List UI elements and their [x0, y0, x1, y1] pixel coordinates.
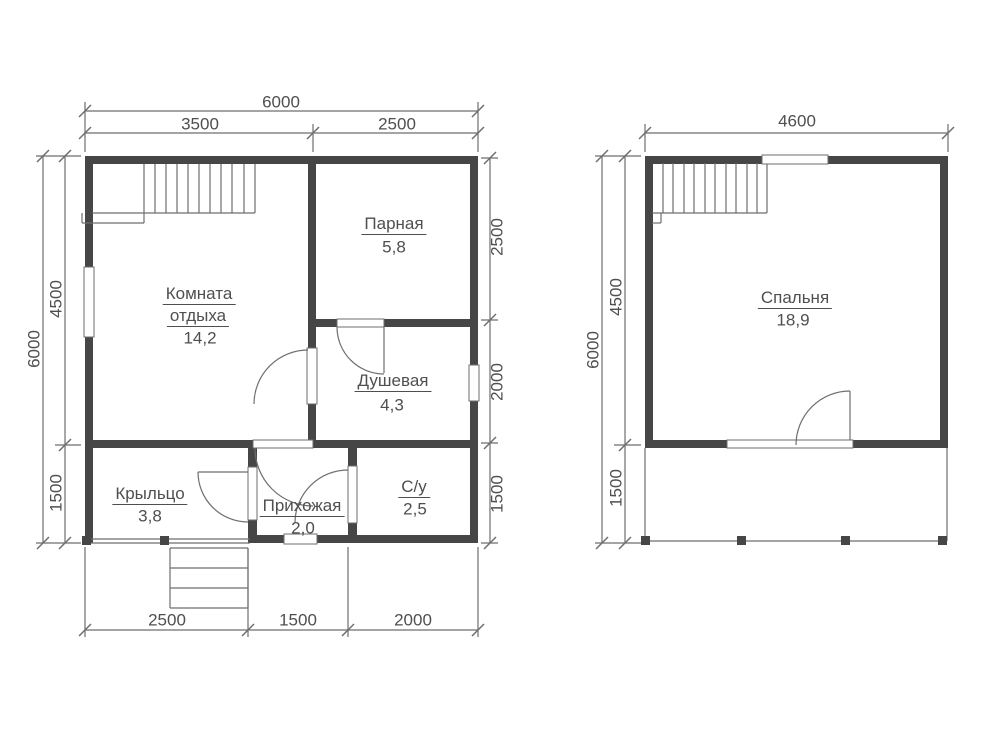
door-arc-bedroom	[796, 391, 850, 445]
dim-top-total: 6000	[262, 94, 300, 111]
room-area-wc: 2,5	[403, 501, 427, 518]
dim2-top-total: 4600	[778, 113, 816, 130]
door-opening-wc	[348, 466, 357, 523]
room-name-wc: С/у	[398, 478, 430, 498]
room-area-sauna: 5,8	[382, 239, 406, 256]
door-arc-lounge-shower	[254, 350, 308, 404]
porch-post	[160, 536, 169, 545]
door-opening-porch	[248, 467, 257, 520]
door-opening-sauna	[337, 319, 384, 327]
dim-left-lower: 1500	[48, 474, 65, 512]
door-arc-sauna	[337, 327, 384, 374]
floorplan-image: Комнатаотдыха14,2Парная5,8Душевая4,3Крыл…	[0, 0, 1000, 750]
dim2-left-lower: 1500	[608, 469, 625, 507]
terrace-post	[641, 536, 650, 545]
dim-top-right: 2500	[378, 116, 416, 133]
dim-left-total: 6000	[26, 330, 43, 368]
room-name-hall: Прихожая	[260, 497, 345, 517]
plan1-right-wall	[470, 156, 478, 543]
plan1-sauna-shower-wall	[308, 319, 478, 327]
dim-right-lower: 1500	[489, 475, 506, 513]
dim-right-middle: 2000	[489, 363, 506, 401]
room-area-lounge: 14,2	[183, 330, 216, 347]
plan1-top-wall	[85, 156, 478, 164]
dim-bottom-left: 2500	[148, 612, 186, 629]
dim2-left-total: 6000	[585, 331, 602, 369]
dim2-left-upper: 4500	[608, 278, 625, 316]
room-name-lounge-line2: отдыха	[167, 307, 229, 327]
dim-bottom-right: 2000	[394, 612, 432, 629]
door-opening-bedroom	[727, 440, 853, 448]
room-name-bedroom: Спальня	[758, 289, 832, 309]
door-arc-porch	[198, 472, 248, 522]
room-area-hall: 2,0	[291, 520, 315, 537]
terrace-post	[938, 536, 947, 545]
room-name-lounge-line1: Комната	[163, 285, 236, 305]
door-opening-lounge-hall	[253, 440, 313, 448]
room-name-porch: Крыльцо	[112, 485, 187, 505]
dim-left-upper: 4500	[48, 280, 65, 318]
door-opening-lounge-shower	[307, 348, 317, 404]
dim-right-upper: 2500	[489, 218, 506, 256]
plan1-left-wall	[85, 156, 93, 543]
porch-post	[82, 536, 91, 545]
window-left	[84, 267, 94, 337]
plan2-right-wall	[940, 156, 948, 448]
room-area-shower: 4,3	[380, 397, 404, 414]
plan2-left-wall	[645, 156, 653, 448]
window-right	[469, 365, 479, 401]
window-top-plan2	[762, 155, 828, 164]
room-area-bedroom: 18,9	[776, 312, 809, 329]
dim-top-left: 3500	[181, 116, 219, 133]
dim-bottom-middle: 1500	[279, 612, 317, 629]
terrace-post	[841, 536, 850, 545]
room-area-porch: 3,8	[138, 508, 162, 525]
room-name-sauna: Парная	[361, 215, 426, 235]
room-name-shower: Душевая	[355, 372, 432, 392]
terrace-post	[737, 536, 746, 545]
